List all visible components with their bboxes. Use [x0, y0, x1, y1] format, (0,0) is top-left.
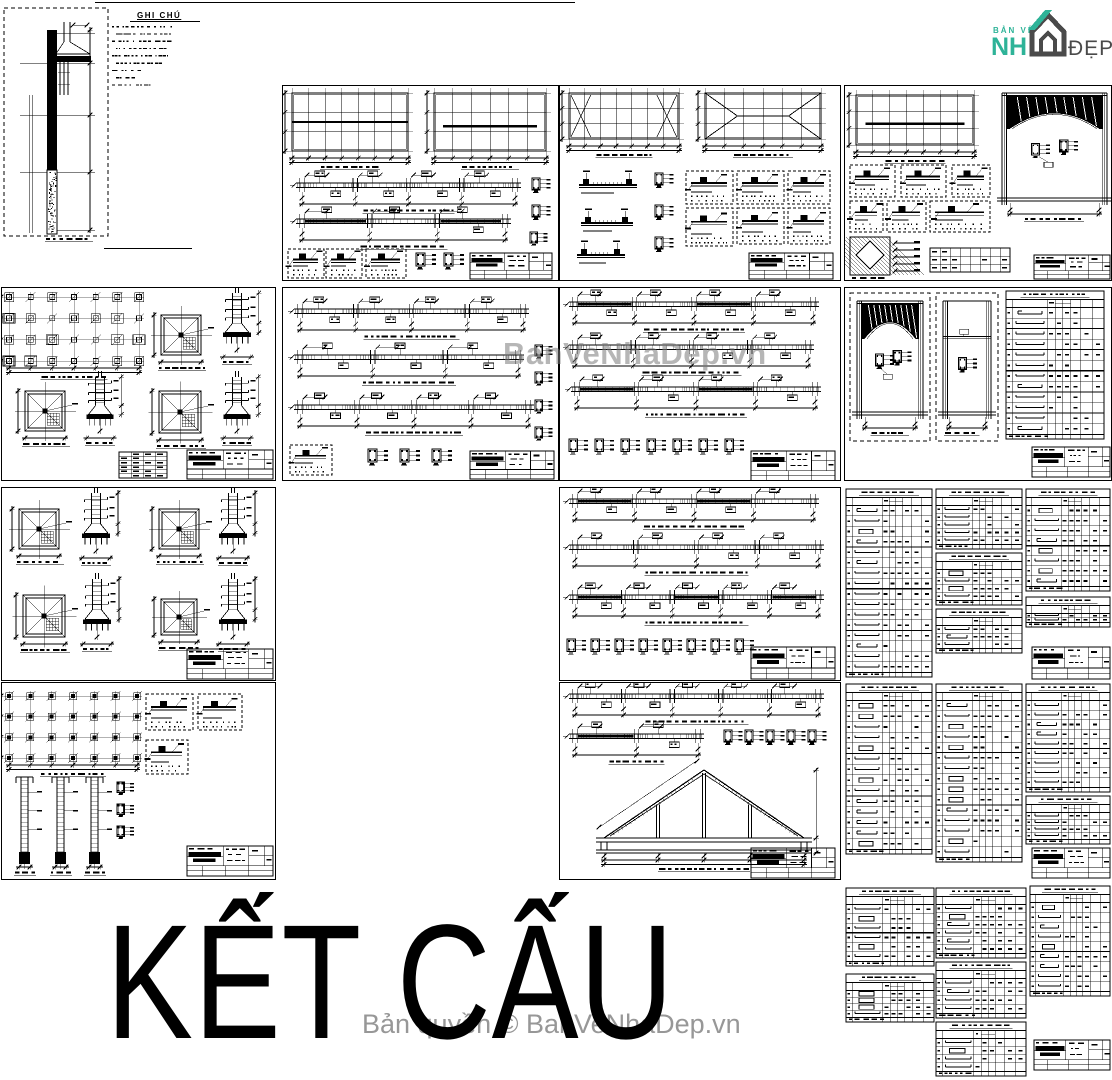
- rebar-schedule-tables-3: [844, 884, 1112, 1080]
- drawing-canvas: GHI CHÚ KẾT CẤU Bản quyền © BanVeNhaDep.…: [0, 0, 1112, 1080]
- sheet-ground-section-detail: [0, 0, 320, 252]
- sheet-roof-framing-plan: [559, 85, 841, 281]
- sheet-beam-details-1: [282, 287, 559, 481]
- sheet-roof-truss: [559, 682, 841, 880]
- rebar-schedule-tables-2: [844, 682, 1112, 882]
- sheet-foundation-plan: [1, 287, 276, 481]
- sheet-floor-framing-plan: [282, 85, 559, 281]
- sheet-beam-details-2: [559, 287, 841, 481]
- logo-main-text: NH: [991, 33, 1027, 62]
- site-logo: BẢN VẼ NH ĐẸP: [990, 0, 1112, 68]
- sheet-column-details: [1, 682, 276, 880]
- sheet-arch-facade-detail-2: [844, 287, 1112, 481]
- sheet-beam-details-3: [559, 487, 841, 681]
- sheet-footing-details: [1, 487, 276, 681]
- notes-heading: GHI CHÚ: [137, 11, 181, 20]
- center-watermark: BanVeNhaDep.vn: [503, 336, 767, 372]
- rebar-schedule-tables-1: [844, 487, 1112, 684]
- house-icon: [1026, 4, 1070, 62]
- sheet-arch-facade-detail-1: [844, 85, 1112, 281]
- logo-suffix-text: ĐẸP: [1068, 37, 1112, 61]
- page-title: KẾT CẤU: [106, 900, 674, 1063]
